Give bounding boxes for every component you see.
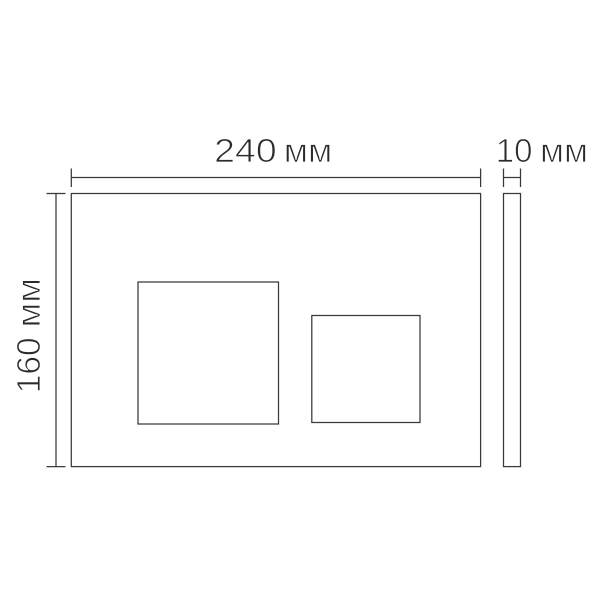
svg-text:мм: мм xyxy=(540,132,588,169)
svg-text:10: 10 xyxy=(496,132,533,169)
svg-text:мм: мм xyxy=(10,278,47,328)
svg-text:мм: мм xyxy=(284,132,333,169)
svg-text:160: 160 xyxy=(10,337,47,393)
svg-text:240: 240 xyxy=(214,132,277,169)
